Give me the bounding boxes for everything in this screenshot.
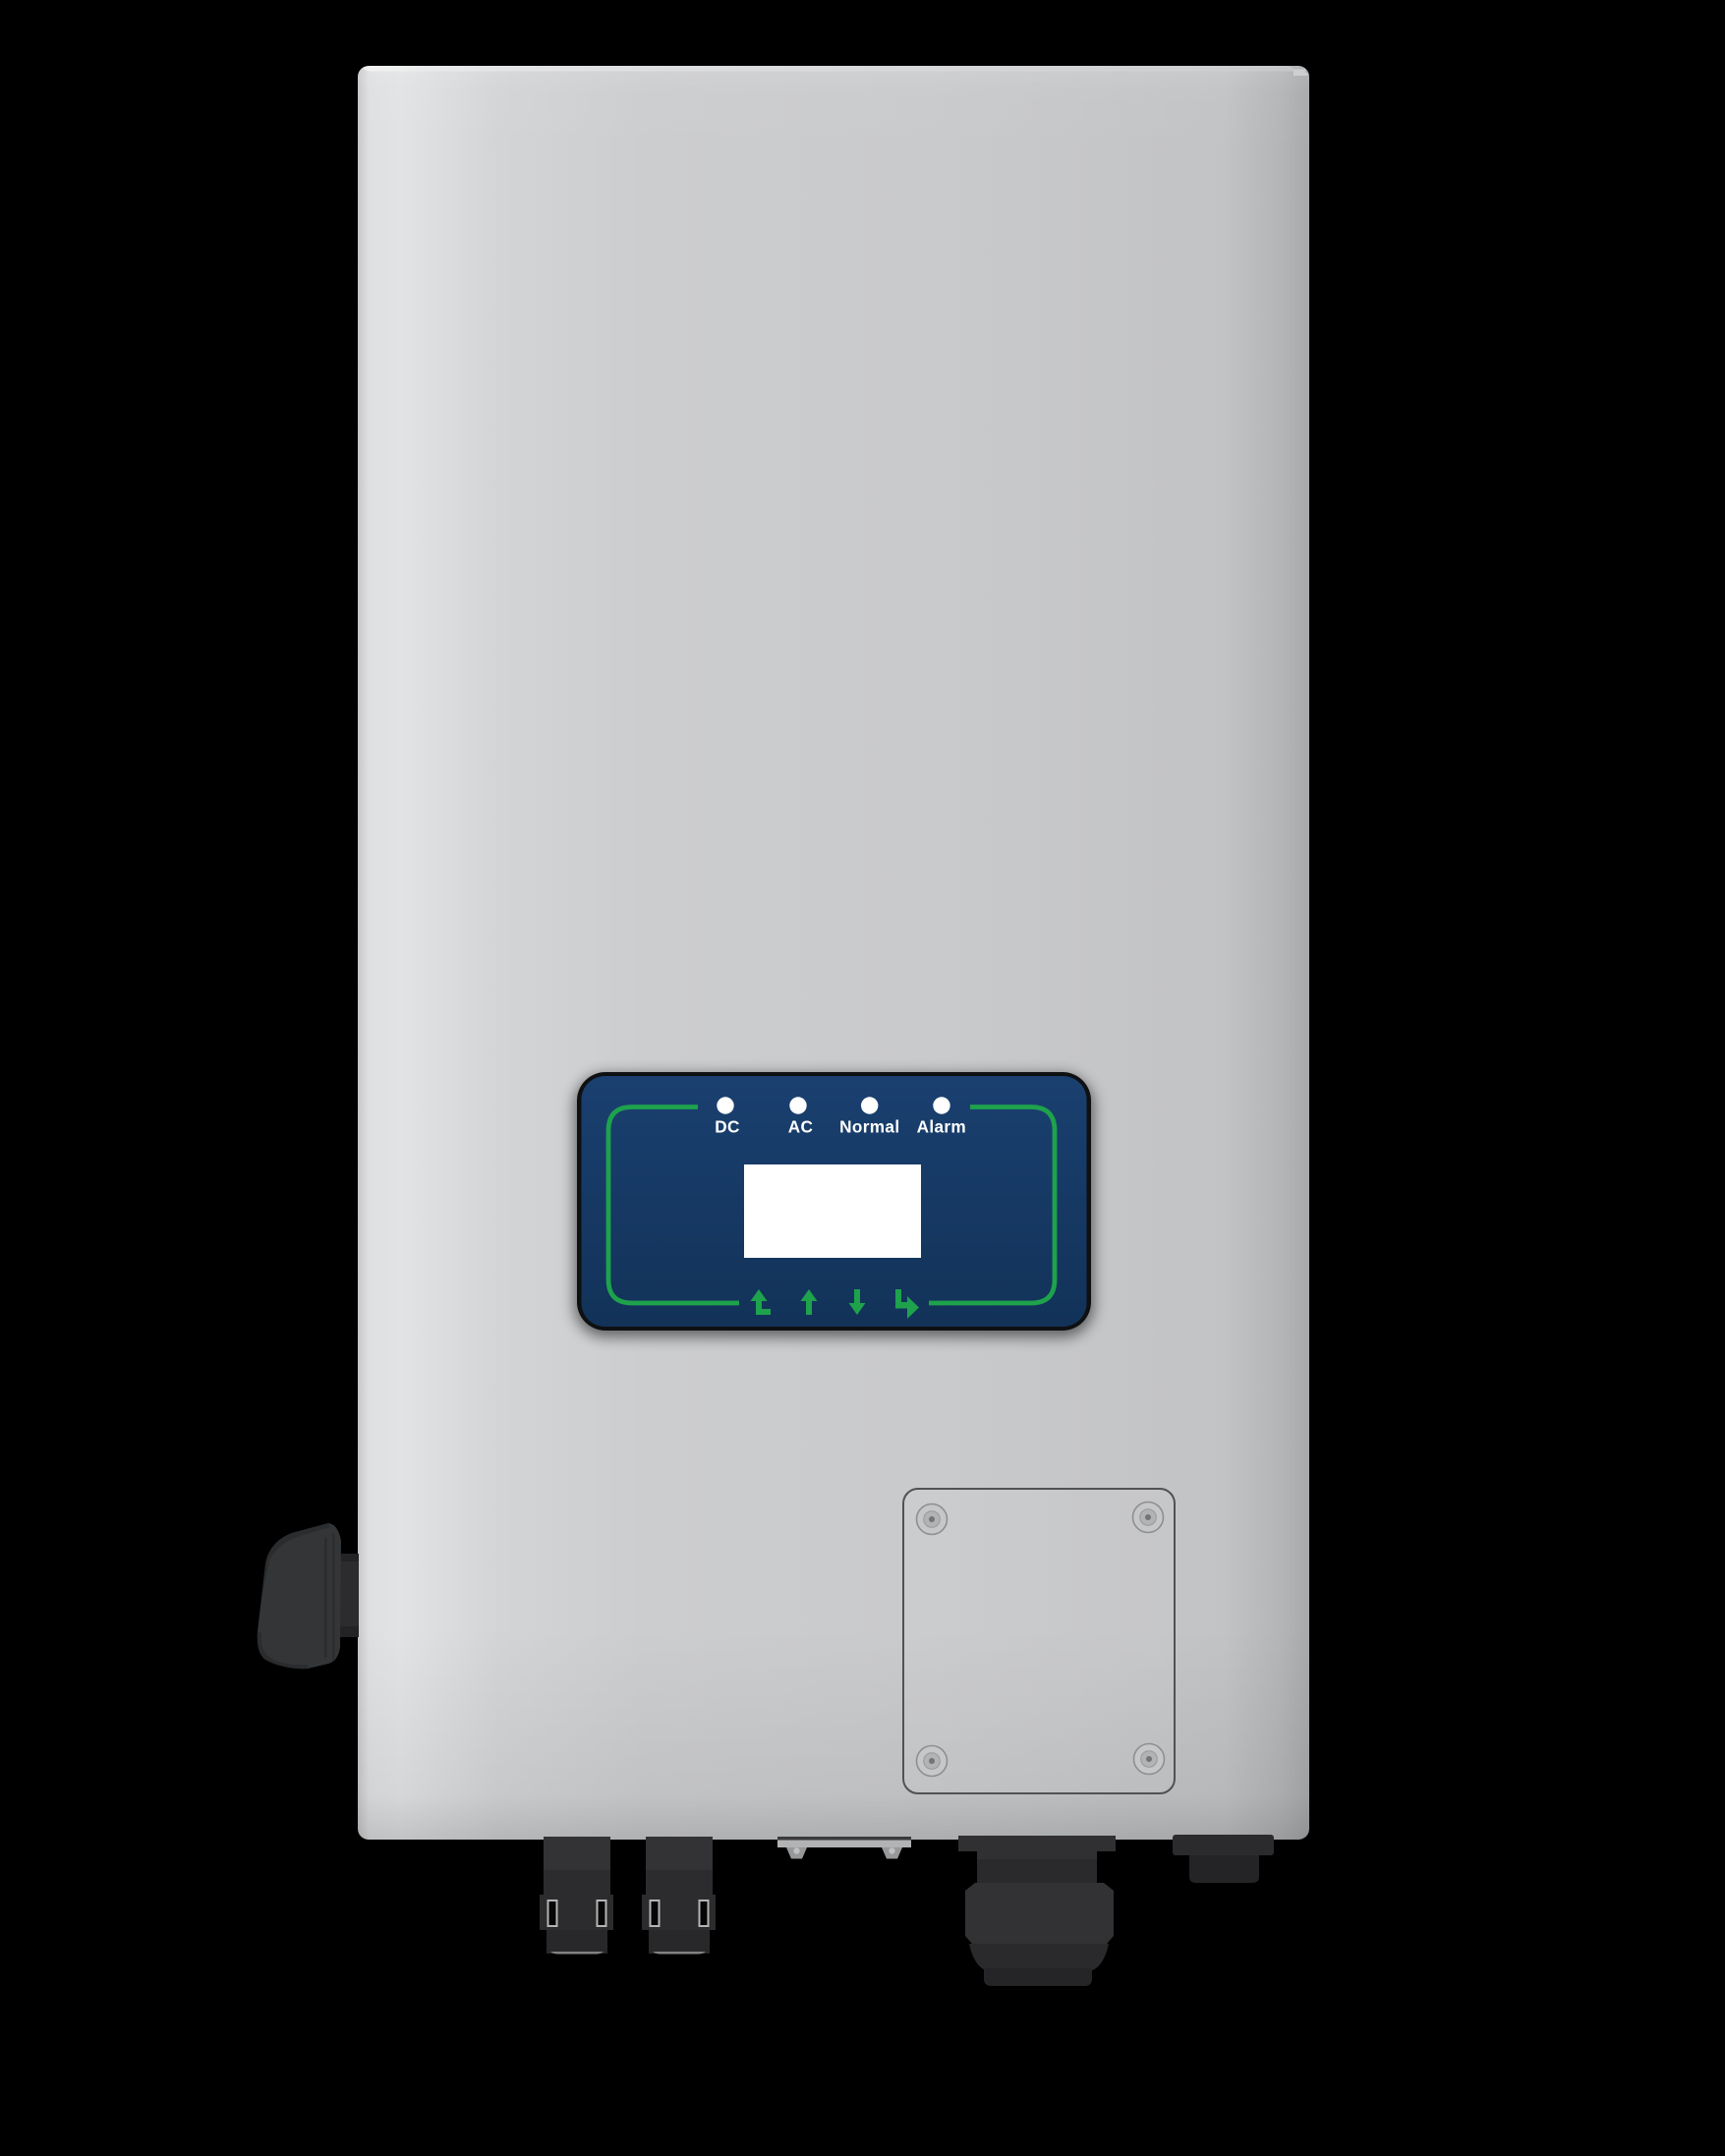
svg-text:Normal: Normal <box>839 1117 899 1137</box>
svg-text:DC: DC <box>715 1117 740 1137</box>
svg-text:AC: AC <box>788 1117 814 1137</box>
svg-text:Alarm: Alarm <box>917 1117 966 1137</box>
